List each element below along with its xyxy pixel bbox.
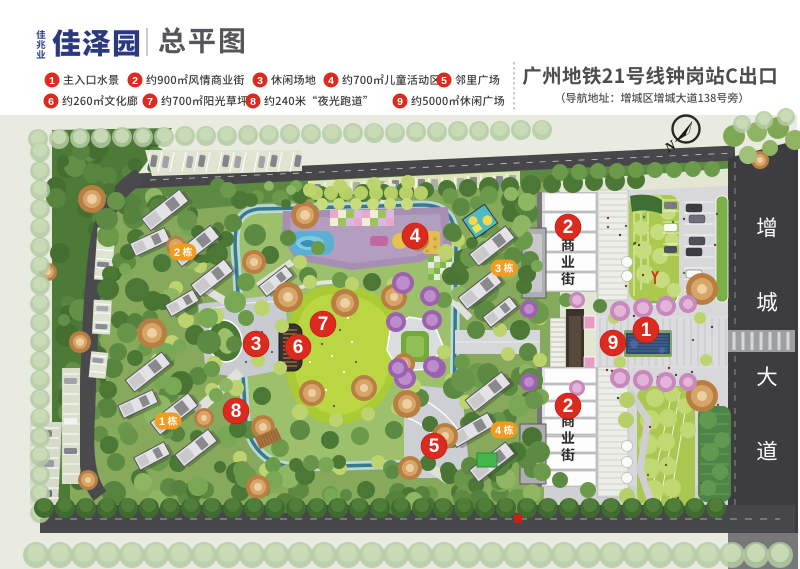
svg-text:4: 4 [495, 425, 502, 437]
svg-text:7: 7 [318, 314, 329, 335]
svg-text:9: 9 [608, 333, 619, 354]
svg-text:6: 6 [48, 96, 54, 108]
svg-text:4: 4 [410, 226, 421, 247]
svg-text:3: 3 [257, 75, 263, 87]
svg-text:1: 1 [49, 75, 55, 87]
svg-text:6: 6 [293, 337, 304, 358]
svg-text:8: 8 [250, 96, 256, 108]
svg-text:2: 2 [132, 75, 138, 87]
svg-text:7: 7 [147, 96, 153, 108]
svg-text:5: 5 [429, 436, 440, 457]
svg-text:2: 2 [174, 247, 180, 259]
svg-text:1: 1 [159, 416, 165, 428]
svg-text:2: 2 [563, 217, 574, 238]
svg-text:3: 3 [251, 334, 262, 355]
svg-text:2: 2 [563, 396, 574, 417]
svg-text:8: 8 [231, 401, 242, 422]
svg-text:5: 5 [441, 75, 447, 87]
svg-text:3: 3 [495, 263, 501, 275]
svg-text:9: 9 [397, 96, 403, 108]
svg-text:4: 4 [328, 75, 334, 87]
svg-text:1: 1 [641, 320, 652, 341]
